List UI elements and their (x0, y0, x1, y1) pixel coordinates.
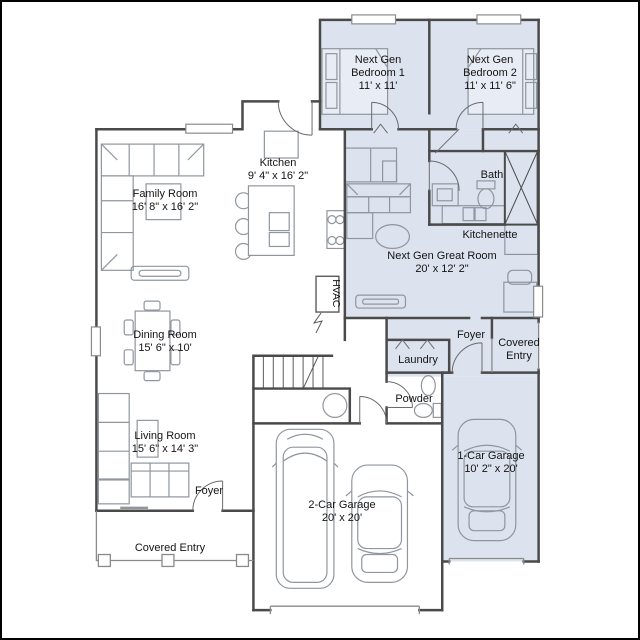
door-arc (193, 481, 223, 511)
door-arc (360, 397, 387, 424)
porch-column (98, 555, 110, 567)
powder-sink-icon (421, 376, 435, 396)
floor-plan-page: HVAC Next Gen Bedroom 1 11' x 11' Next G… (0, 0, 640, 640)
kitchen-island-icon (236, 186, 295, 260)
window (352, 15, 396, 24)
refrigerator-icon (264, 131, 298, 158)
window (477, 15, 521, 24)
garage-door (270, 606, 419, 614)
bed-icon (468, 49, 537, 115)
dining-table-icon (124, 301, 180, 381)
sofa-icon (101, 144, 203, 270)
window (534, 286, 543, 317)
stairs-icon (263, 357, 323, 389)
hvac-unit: HVAC (314, 276, 341, 333)
duct-arrow-icon (314, 313, 322, 333)
room-label-hvac: HVAC (330, 279, 341, 308)
porch-column (162, 555, 174, 567)
water-heater-icon (323, 394, 347, 418)
door-arc (278, 101, 312, 135)
media-console-icon (131, 266, 189, 280)
sofa-icon (98, 394, 188, 504)
door-arc (387, 382, 413, 408)
car-icon (346, 465, 414, 582)
covered-entry-outline (96, 511, 253, 561)
window (91, 327, 100, 356)
coffee-table-icon (146, 184, 181, 220)
bed-icon (322, 49, 388, 115)
range-icon (327, 211, 345, 249)
coffee-table-icon (137, 420, 158, 457)
toilet-icon (414, 403, 441, 417)
porch-column (237, 555, 249, 567)
floor-plan-drawing: HVAC (2, 2, 638, 638)
car-icon (272, 429, 338, 588)
window (186, 124, 233, 133)
